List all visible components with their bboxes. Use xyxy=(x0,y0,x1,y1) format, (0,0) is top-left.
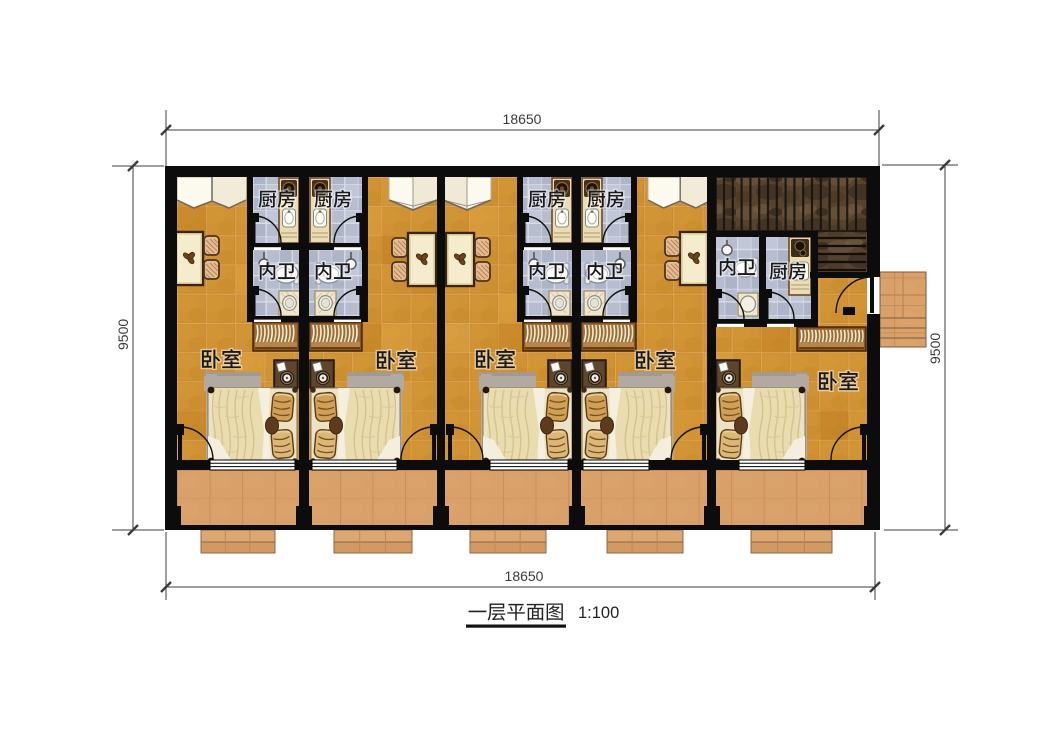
svg-text:18650: 18650 xyxy=(505,568,544,584)
svg-text:9500: 9500 xyxy=(115,319,131,350)
svg-text:9500: 9500 xyxy=(927,333,943,364)
svg-text:1:100: 1:100 xyxy=(578,604,619,622)
svg-text:18650: 18650 xyxy=(503,111,542,127)
